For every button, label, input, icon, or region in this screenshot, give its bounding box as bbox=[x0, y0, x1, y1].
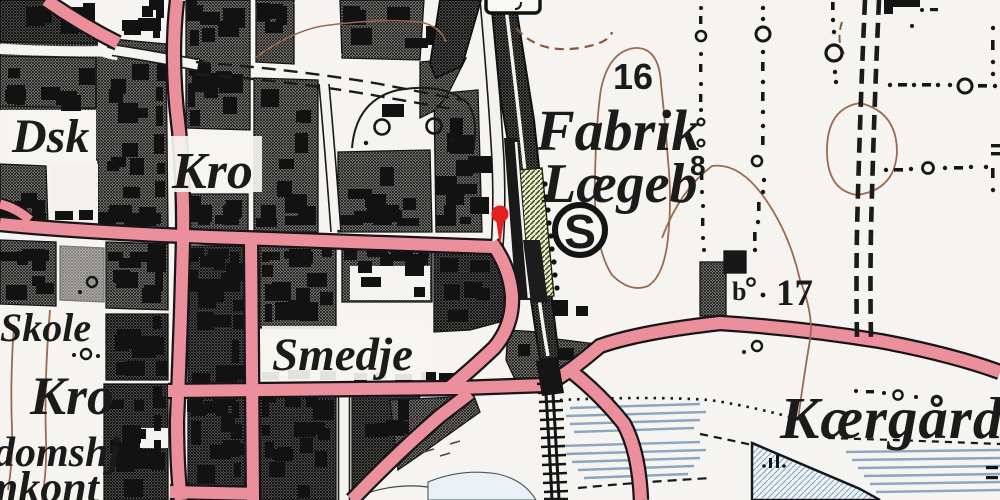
svg-text:Skole: Skole bbox=[0, 305, 91, 350]
svg-text:17: 17 bbox=[776, 273, 813, 314]
svg-text:Kro: Kro bbox=[171, 143, 253, 200]
svg-text:Kærgård: Kærgård bbox=[779, 385, 1000, 451]
svg-text:16: 16 bbox=[613, 56, 653, 97]
svg-text:Dsk: Dsk bbox=[11, 110, 89, 163]
svg-text:8: 8 bbox=[690, 150, 706, 181]
svg-text:Lægeb: Lægeb bbox=[541, 153, 698, 215]
svg-text:Smedje: Smedje bbox=[272, 329, 413, 381]
svg-text:Kro: Kro bbox=[29, 366, 114, 426]
svg-text:b: b bbox=[732, 277, 746, 306]
svg-text:mkont: mkont bbox=[0, 463, 101, 500]
